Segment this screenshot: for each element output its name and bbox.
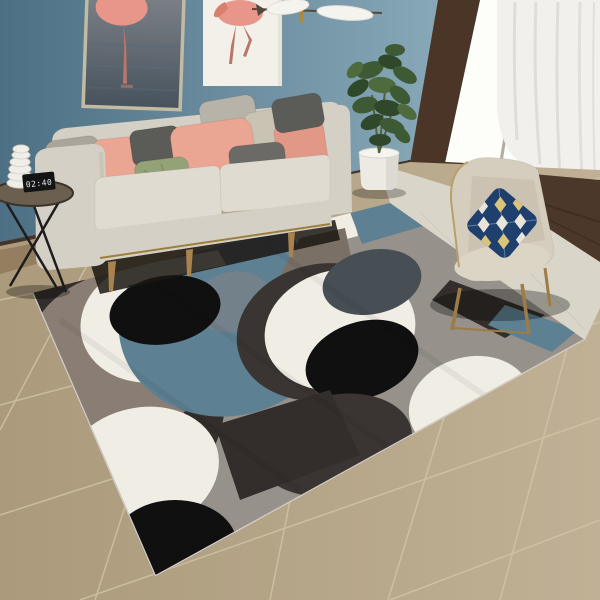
flamingo-reflection xyxy=(121,85,133,88)
decor-ring xyxy=(13,145,29,153)
leaf xyxy=(385,44,405,56)
table-shadow xyxy=(6,285,70,299)
alarm-clock: 02:40 xyxy=(22,171,56,192)
living-room-photo: 02:40 xyxy=(0,0,600,600)
flamingo-art-dark xyxy=(83,0,184,110)
leaf xyxy=(369,134,391,146)
scene-canvas: 02:40 xyxy=(0,0,600,600)
